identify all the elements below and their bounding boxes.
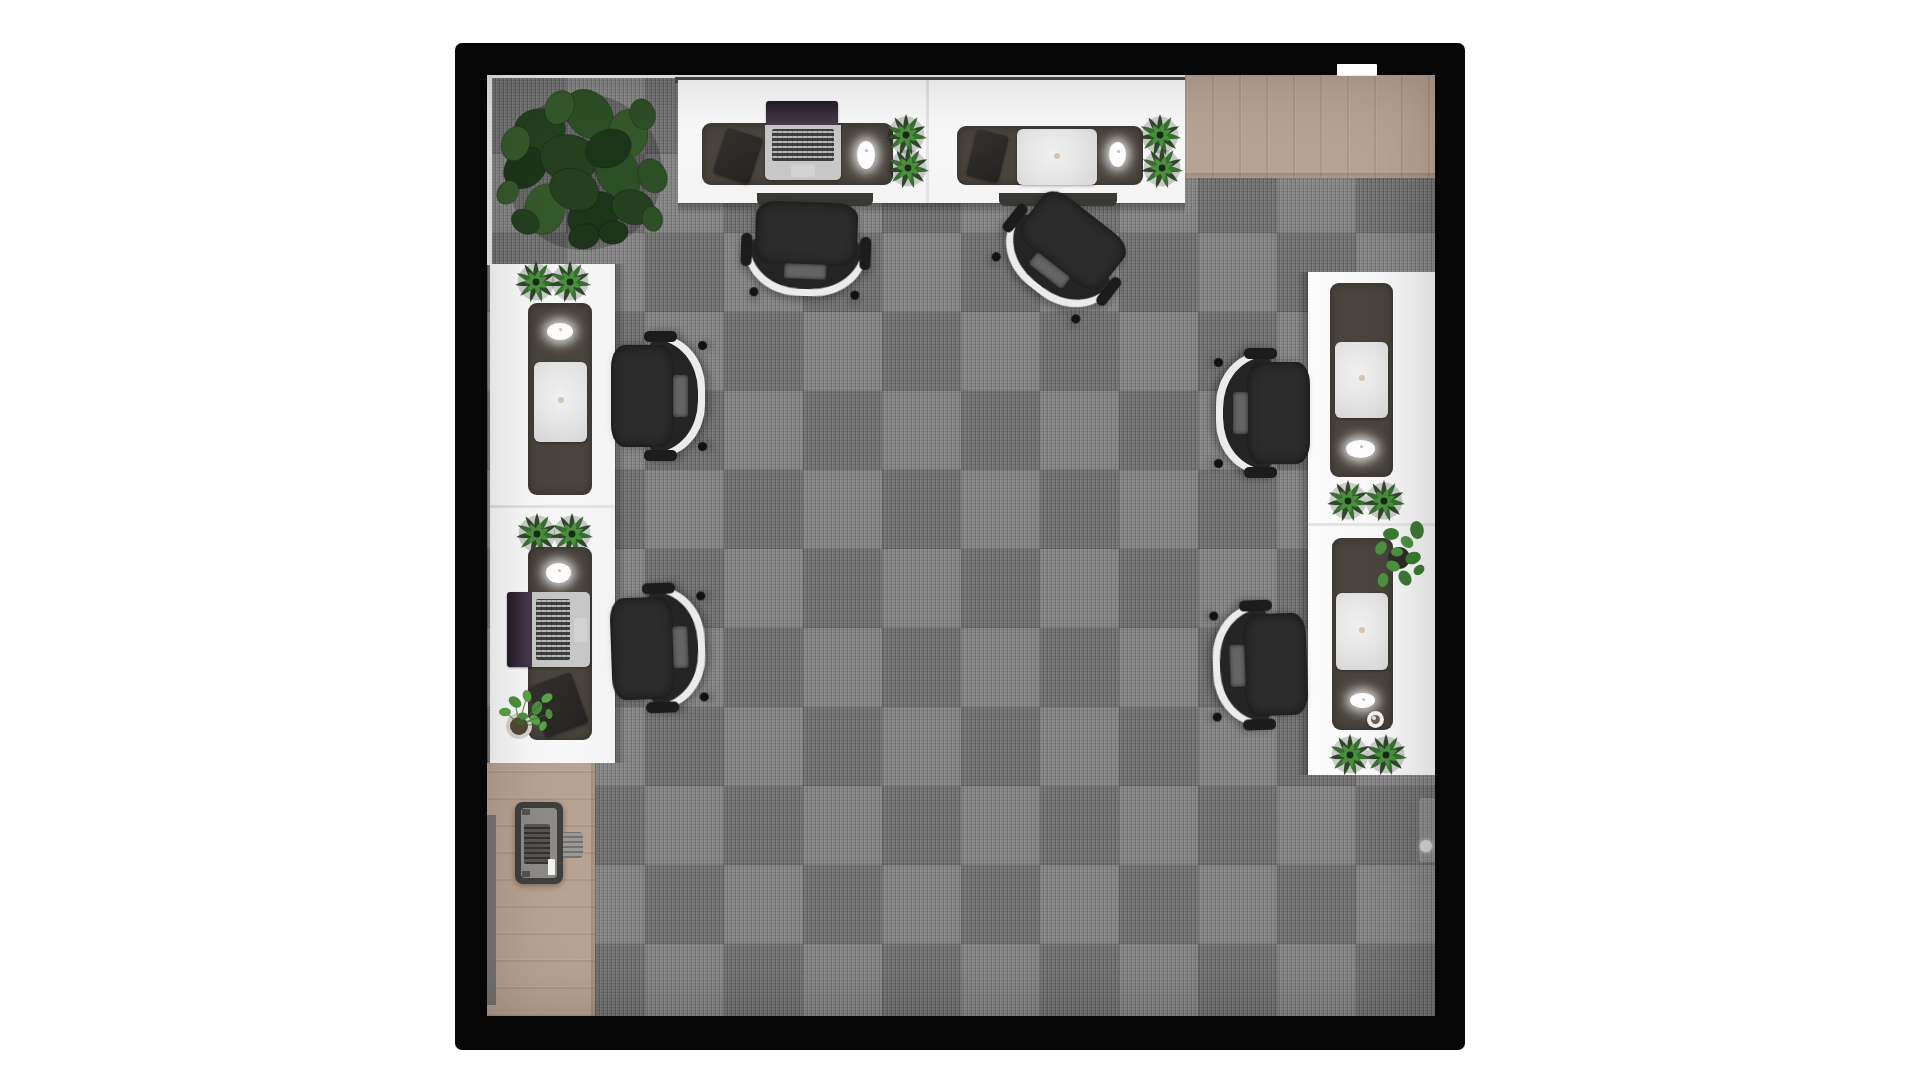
printer-hinge — [522, 871, 530, 877]
chair-armrest — [646, 701, 679, 713]
chair-armrest — [642, 583, 675, 595]
chair-armrest — [1243, 718, 1276, 730]
chair-caster — [696, 591, 705, 600]
large-fiddle-leaf-plant — [496, 80, 672, 256]
wood-edge-shadow — [1185, 173, 1435, 181]
wood-edge-shadow — [591, 763, 599, 1016]
chair-seat — [1243, 612, 1309, 717]
chair-caster — [1214, 459, 1223, 468]
laptop-closed — [1336, 593, 1388, 670]
chair-seat — [611, 345, 674, 447]
room-floor-carpet — [487, 75, 1435, 1016]
chair-armrest — [1244, 467, 1277, 478]
office-chair — [611, 335, 703, 457]
office-chair — [609, 585, 705, 710]
chair-caster — [1214, 358, 1223, 367]
mouse-button-dot — [559, 328, 562, 331]
chair-caster — [1209, 612, 1218, 621]
laptop-open — [532, 592, 590, 667]
mouse — [546, 563, 571, 583]
chair-caster — [749, 287, 758, 296]
laptop-logo — [1359, 627, 1365, 633]
chair-mechanism — [784, 263, 826, 280]
mouse-button-dot — [865, 149, 868, 152]
chair-armrest — [1239, 600, 1272, 612]
chair-caster — [1069, 313, 1082, 326]
mouse-button-dot — [1362, 698, 1365, 701]
laptop-trackpad — [791, 164, 815, 177]
chair-armrest — [741, 233, 753, 266]
chair-caster — [990, 251, 1003, 264]
chair-caster — [700, 692, 709, 701]
laptop-logo — [1359, 375, 1365, 381]
chair-mechanism — [673, 375, 689, 416]
chair-armrest — [859, 237, 871, 270]
laptop-keyboard — [772, 129, 834, 161]
mouse-button-dot — [558, 569, 561, 572]
laptop-screen — [507, 592, 532, 667]
laptop-closed — [1017, 129, 1097, 185]
printer-hinge — [522, 809, 530, 815]
wood-floor-top-right — [1185, 75, 1435, 178]
baseboard-shadow — [487, 815, 496, 1005]
chair-armrest — [1244, 348, 1277, 359]
chair-armrest — [644, 331, 677, 342]
door-handle — [1420, 840, 1432, 852]
printer-paper-tray — [563, 832, 583, 858]
mouse-button-dot — [1117, 150, 1120, 153]
laptop-trackpad — [574, 618, 587, 642]
mouse — [857, 141, 875, 169]
laptop-logo — [1054, 153, 1060, 159]
chair-caster — [698, 341, 707, 350]
printer-label — [548, 859, 555, 875]
printer-vents — [524, 824, 550, 864]
laptop-closed — [534, 362, 587, 442]
chair-armrest — [644, 450, 677, 461]
chair-seat — [609, 596, 675, 701]
laptop-closed — [1335, 342, 1388, 418]
desk-plant — [885, 145, 931, 191]
wood-floor-bottom-left — [487, 763, 595, 1016]
desk-plant — [1363, 732, 1409, 778]
chair-mechanism — [672, 626, 689, 668]
desk-plant — [1361, 478, 1407, 524]
chair-mechanism — [1229, 645, 1246, 687]
laptop-keyboard — [536, 599, 570, 660]
desk-plant — [1139, 145, 1185, 191]
door-gap-top-wall — [1337, 64, 1377, 76]
laptop-screen — [766, 101, 838, 125]
office-render — [0, 0, 1920, 1080]
mouse — [1350, 693, 1375, 708]
door-right-wall — [1419, 798, 1435, 862]
chair-seat — [754, 200, 859, 266]
laptop-logo — [558, 397, 564, 403]
office-chair — [1213, 602, 1309, 727]
printer — [515, 802, 563, 884]
mouse — [1346, 440, 1375, 458]
desk-plant-ivy — [1369, 521, 1429, 591]
chair-caster — [698, 442, 707, 451]
mouse-button-dot — [1360, 445, 1363, 448]
mouse — [547, 323, 573, 340]
laptop-open — [765, 125, 841, 180]
chair-seat — [1247, 362, 1310, 464]
wall-trim-left — [487, 75, 492, 265]
mug-glint — [1372, 716, 1376, 720]
mouse — [1109, 142, 1126, 167]
desk-divider — [490, 505, 615, 508]
coffee-mug — [1367, 711, 1384, 728]
chair-caster — [1213, 712, 1222, 721]
office-chair — [743, 200, 868, 296]
chair-caster — [850, 291, 859, 300]
desk-plant — [547, 259, 593, 305]
chair-mechanism — [1233, 392, 1249, 433]
floor-plant — [497, 688, 559, 740]
office-chair — [1218, 352, 1310, 474]
room-walls — [455, 43, 1465, 1050]
